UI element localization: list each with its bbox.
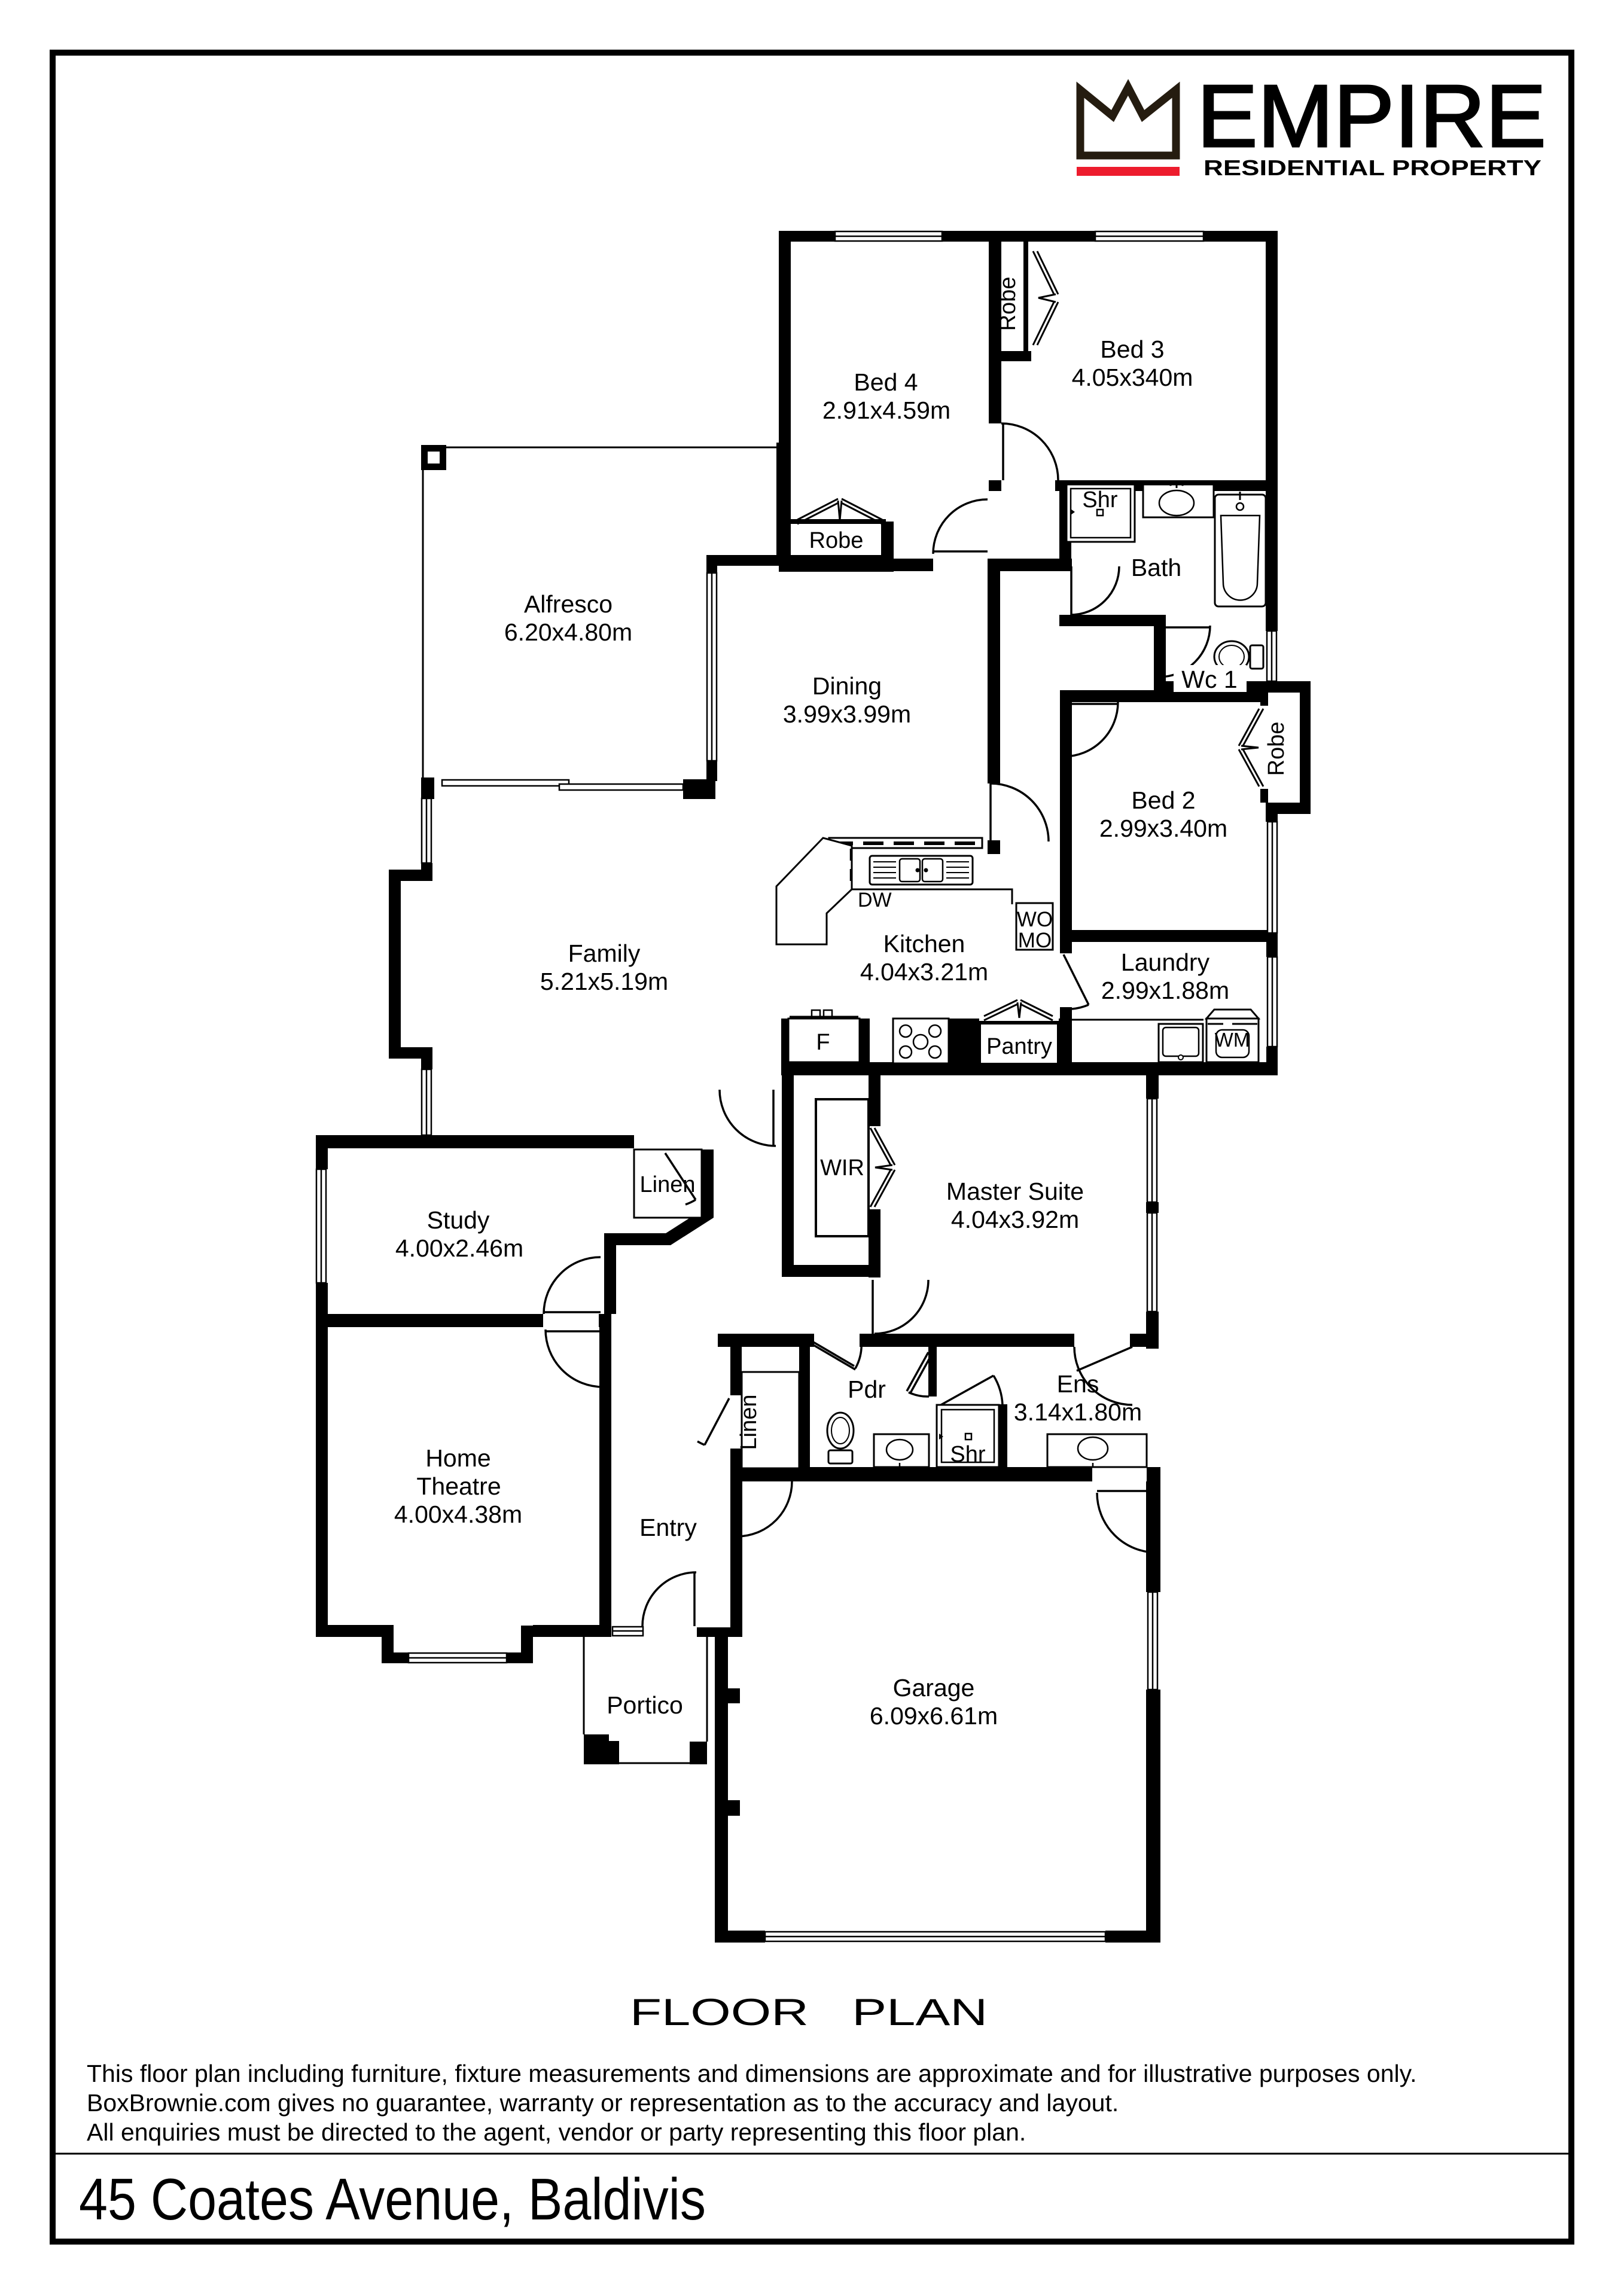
svg-text:Portico: Portico (607, 1691, 683, 1719)
svg-text:EMPIRE: EMPIRE (1197, 67, 1546, 166)
svg-text:4.04x3.21m: 4.04x3.21m (860, 958, 988, 986)
svg-text:Robe: Robe (1264, 722, 1289, 776)
svg-text:4.05x340m: 4.05x340m (1072, 364, 1193, 391)
svg-text:Laundry: Laundry (1121, 949, 1210, 976)
svg-text:All enquiries must be directed: All enquiries must be directed to the ag… (87, 2118, 1026, 2146)
svg-text:2.99x3.40m: 2.99x3.40m (1099, 815, 1227, 842)
svg-text:Kitchen: Kitchen (883, 930, 965, 958)
svg-text:Dining: Dining (812, 672, 882, 700)
svg-text:Alfresco: Alfresco (524, 590, 613, 618)
svg-text:4.00x2.46m: 4.00x2.46m (395, 1234, 523, 1262)
svg-text:Entry: Entry (639, 1514, 697, 1541)
svg-text:Shr: Shr (950, 1442, 985, 1467)
svg-text:RESIDENTIAL PROPERTY: RESIDENTIAL PROPERTY (1203, 155, 1541, 180)
svg-text:Wc 1: Wc 1 (1181, 666, 1237, 693)
svg-text:3.99x3.99m: 3.99x3.99m (783, 700, 911, 728)
svg-text:WIR: WIR (820, 1155, 864, 1181)
svg-text:MO: MO (1018, 929, 1052, 952)
svg-text:Bed 4: Bed 4 (854, 368, 918, 396)
svg-text:3.14x1.80m: 3.14x1.80m (1014, 1398, 1142, 1426)
svg-text:Bath: Bath (1131, 554, 1181, 581)
svg-text:Bed 2: Bed 2 (1131, 786, 1195, 814)
svg-text:Linen: Linen (736, 1395, 761, 1450)
svg-text:Robe: Robe (995, 277, 1020, 331)
svg-text:Master Suite: Master Suite (946, 1178, 1084, 1205)
svg-text:45 Coates Avenue, Baldivis: 45 Coates Avenue, Baldivis (79, 2166, 706, 2232)
svg-text:4.00x4.38m: 4.00x4.38m (394, 1501, 522, 1528)
svg-text:WM: WM (1215, 1029, 1250, 1051)
svg-text:4.04x3.92m: 4.04x3.92m (951, 1206, 1079, 1233)
svg-text:Bed 3: Bed 3 (1100, 336, 1164, 363)
svg-text:Garage: Garage (893, 1674, 975, 1702)
svg-text:Pantry: Pantry (986, 1034, 1052, 1059)
svg-text:2.91x4.59m: 2.91x4.59m (822, 397, 950, 424)
svg-text:Theatre: Theatre (416, 1472, 501, 1500)
svg-text:Shr: Shr (1082, 487, 1117, 513)
svg-text:6.20x4.80m: 6.20x4.80m (504, 618, 632, 646)
svg-text:6.09x6.61m: 6.09x6.61m (870, 1702, 998, 1730)
svg-text:Study: Study (427, 1206, 490, 1234)
svg-text:BoxBrownie.com gives no guaran: BoxBrownie.com gives no guarantee, warra… (87, 2089, 1119, 2117)
svg-text:Home: Home (425, 1444, 490, 1472)
svg-text:2.99x1.88m: 2.99x1.88m (1101, 977, 1229, 1004)
svg-text:Family: Family (568, 940, 641, 967)
svg-text:F: F (816, 1030, 830, 1055)
svg-text:WO: WO (1017, 908, 1053, 931)
svg-text:Pdr: Pdr (848, 1376, 886, 1403)
svg-text:FLOOR PLAN: FLOOR PLAN (630, 1992, 988, 2033)
svg-text:Ens: Ens (1057, 1370, 1099, 1398)
svg-text:This floor plan including furn: This floor plan including furniture, fix… (87, 2060, 1416, 2087)
svg-text:5.21x5.19m: 5.21x5.19m (540, 968, 668, 995)
svg-text:DW: DW (858, 889, 892, 911)
svg-text:Robe: Robe (809, 528, 864, 553)
svg-text:Linen: Linen (640, 1172, 696, 1197)
